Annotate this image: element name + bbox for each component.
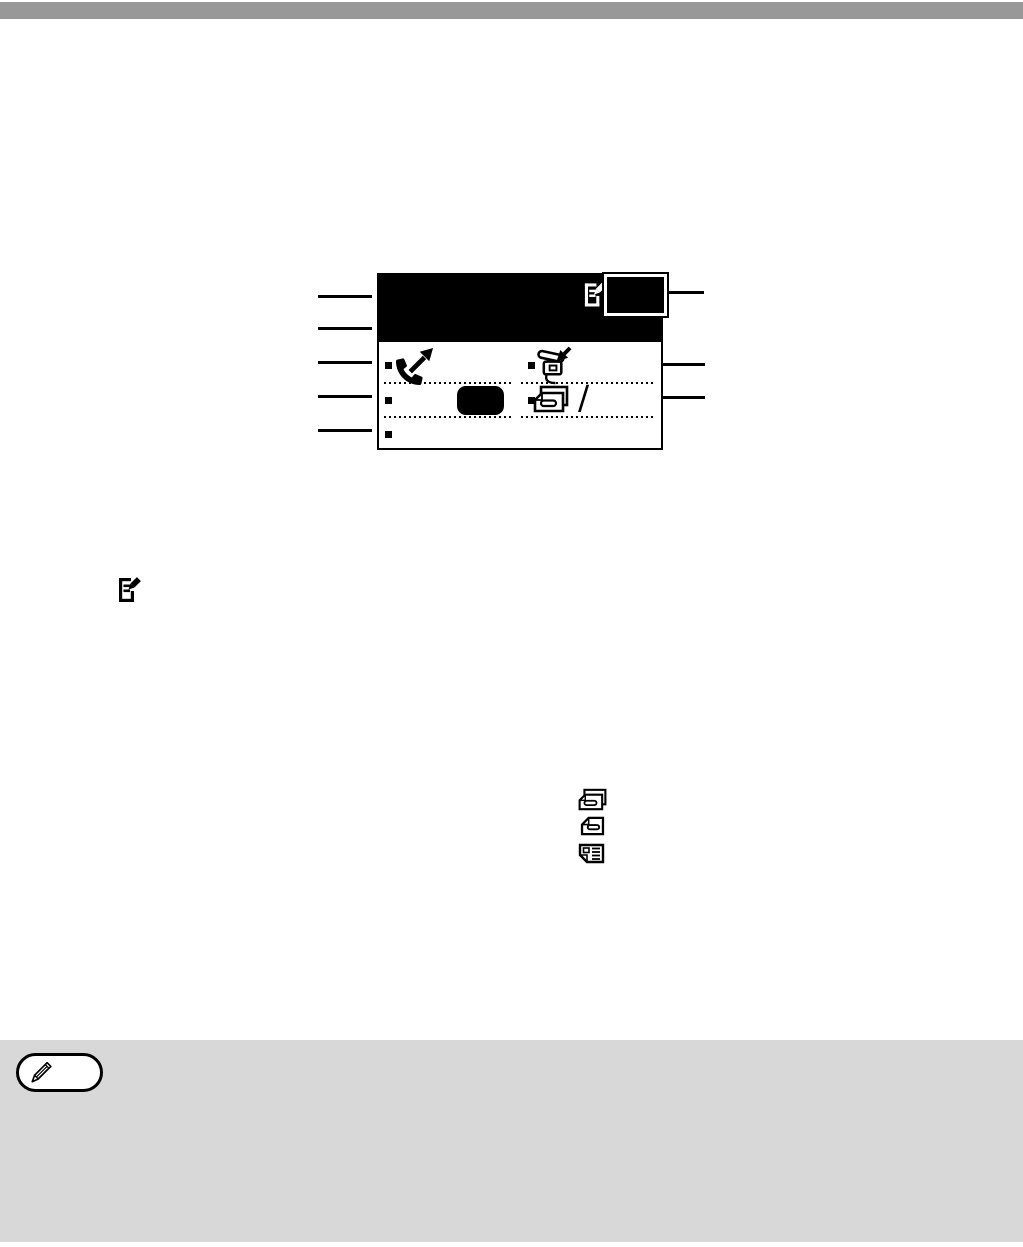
slash-separator: / xyxy=(578,381,589,414)
single-document-icon xyxy=(580,816,605,836)
callout-line-right-1 xyxy=(666,291,704,294)
bullet-square-row1-left xyxy=(385,362,392,369)
document-pen-icon xyxy=(117,574,143,604)
dotted-separator xyxy=(384,382,511,384)
callout-line-left-5 xyxy=(318,429,372,432)
phone-line-in-use-icon xyxy=(396,347,434,385)
top-bar xyxy=(0,2,1023,19)
note-box xyxy=(0,1040,1023,1242)
callout-line-left-4 xyxy=(318,395,372,398)
pencil-icon xyxy=(29,1059,55,1085)
dotted-separator xyxy=(384,416,511,418)
dual-page-icon xyxy=(578,843,605,864)
highlighted-field-box xyxy=(604,274,667,316)
stacked-documents-icon xyxy=(578,788,607,811)
bullet-square-row1-right xyxy=(528,362,535,369)
bullet-square-row2-left xyxy=(385,397,392,404)
display-screen-figure: / xyxy=(377,273,663,450)
bullet-square-row3-left xyxy=(385,431,392,438)
stacked-documents-icon xyxy=(533,385,569,413)
callout-line-left-3 xyxy=(318,361,372,364)
selected-key-highlight xyxy=(457,386,504,415)
callout-line-left-1 xyxy=(318,295,372,298)
note-pill xyxy=(16,1053,103,1092)
callout-line-left-2 xyxy=(318,327,372,330)
page: / xyxy=(0,0,1023,1247)
